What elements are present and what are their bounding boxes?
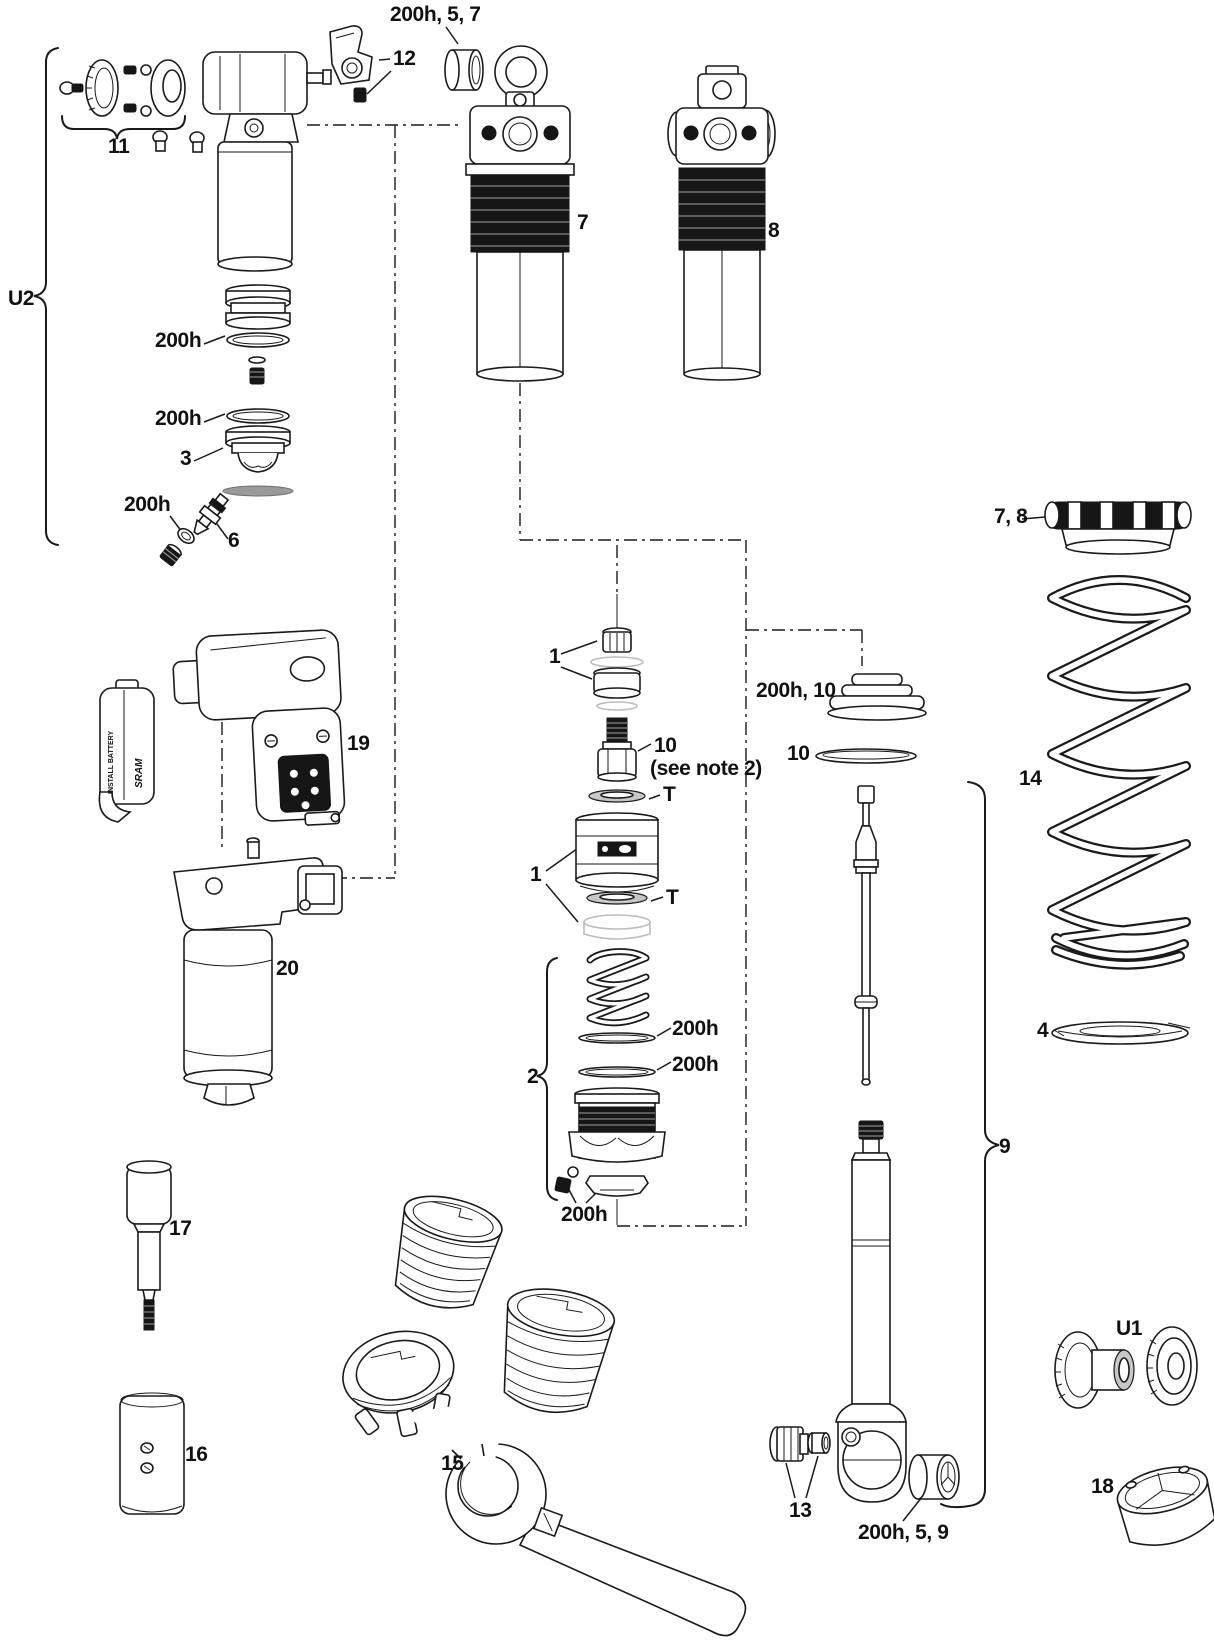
damper-internals-stack	[555, 628, 665, 1196]
callout-13: 13	[789, 1500, 812, 1521]
eyelet-guard-18	[1113, 1459, 1214, 1554]
eyelet-bushing-200h-5-9	[909, 1455, 959, 1499]
preload-collar-7-8	[1045, 502, 1191, 554]
damper-head-assembly	[203, 52, 331, 271]
spacer-tool-16	[120, 1393, 184, 1514]
battery-warning-text: INSTALL BATTERY	[108, 731, 115, 794]
remote-lever-12	[330, 26, 372, 102]
u1-left-piece	[1055, 1332, 1134, 1408]
bumper-bellows-200h-10	[828, 674, 926, 720]
coil-spring-14	[1052, 580, 1186, 965]
callout-17: 17	[169, 1218, 192, 1239]
flight-module-19	[172, 629, 348, 831]
parts-diagram-page: INSTALL BATTERY SRAM	[0, 0, 1214, 1641]
callout-u1: U1	[1116, 1318, 1142, 1339]
air-piston-assembly	[569, 1088, 665, 1162]
callout-200h-e: 200h	[672, 1054, 718, 1075]
spring-retainer-4	[1052, 1022, 1190, 1044]
callout-200h-5-7: 200h, 5, 7	[390, 4, 481, 25]
adjuster-fitting-10	[598, 718, 636, 781]
shaft-nut-and-spacer-13	[770, 1427, 830, 1461]
shaft-clamp-tool-17	[127, 1161, 171, 1330]
callout-200h-10: 200h, 10	[756, 680, 836, 701]
brace-9	[941, 782, 999, 1507]
callout-1-lower: 1	[530, 864, 541, 885]
callout-6: 6	[228, 530, 239, 551]
callout-7-8: 7, 8	[994, 506, 1027, 527]
shock-body-7	[466, 46, 574, 381]
mounting-hardware-11	[60, 60, 204, 152]
threaded-plug	[159, 542, 183, 566]
callout-200h-d: 200h	[672, 1018, 718, 1039]
threaded-sleeve-c	[490, 1282, 618, 1421]
callout-18: 18	[1091, 1476, 1114, 1497]
battery-blocker: INSTALL BATTERY SRAM	[99, 680, 154, 822]
callout-15: 15	[441, 1453, 464, 1474]
callout-4: 4	[1037, 1020, 1048, 1041]
callout-12: 12	[393, 48, 416, 69]
callout-200h-b: 200h	[155, 408, 201, 429]
negative-spring-2	[590, 952, 646, 1023]
damper-shaft-assembly-9	[836, 1121, 906, 1502]
callout-200h-a: 200h	[155, 330, 201, 351]
callout-14: 14	[1019, 768, 1042, 789]
o-ring-200h-a	[227, 333, 289, 347]
callout-19: 19	[347, 733, 370, 754]
callout-3: 3	[180, 448, 191, 469]
callout-16: 16	[185, 1444, 208, 1465]
brace-u2	[34, 48, 58, 545]
u1-right-piece	[1147, 1327, 1197, 1405]
o-ring-200h-c	[175, 526, 197, 547]
o-ring-200h-b	[227, 409, 289, 423]
callout-20: 20	[276, 958, 299, 979]
valve-core-6	[188, 491, 232, 540]
seal-t-lower	[587, 892, 647, 904]
damper-assembly-20	[174, 838, 342, 1105]
ghost-cap	[584, 915, 650, 939]
callout-2: 2	[527, 1066, 538, 1087]
washer-10	[816, 749, 916, 763]
seal-t-upper	[589, 790, 645, 802]
piston-assembly-1	[576, 813, 658, 892]
threaded-sleeve-a	[383, 1188, 506, 1318]
set-screw-12	[354, 88, 366, 102]
callout-t-upper: T	[663, 784, 675, 805]
callout-11: 11	[108, 136, 129, 157]
callout-10-lower: 10	[787, 743, 810, 764]
bottom-cap	[586, 1176, 648, 1196]
callout-200h-c: 200h	[124, 494, 170, 515]
callout-9: 9	[999, 1136, 1010, 1157]
callout-t-lower: T	[666, 887, 678, 908]
brace-2	[537, 958, 557, 1200]
pin-spanner-wrench-15	[408, 1400, 745, 1636]
shim-plate	[223, 486, 293, 496]
callout-8: 8	[768, 220, 779, 241]
callout-7: 7	[577, 212, 588, 233]
mount-bushing-200h-5-7	[445, 50, 483, 90]
callout-u2: U2	[8, 288, 34, 309]
callout-see-note-2: (see note 2)	[650, 758, 762, 779]
callout-200h-f: 200h	[561, 1204, 607, 1225]
needle-shaft	[854, 786, 878, 1085]
sram-logo-text: SRAM	[134, 758, 145, 788]
shock-body-8	[668, 66, 775, 380]
piston-3	[226, 426, 290, 472]
callout-10-upper: 10	[654, 735, 677, 756]
callout-1-upper: 1	[549, 646, 560, 667]
exploded-diagram-artwork: INSTALL BATTERY SRAM	[0, 0, 1214, 1641]
top-cap-1	[594, 668, 640, 698]
callout-200h-5-9: 200h, 5, 9	[858, 1522, 949, 1543]
grub-screw-200h	[555, 1177, 572, 1194]
